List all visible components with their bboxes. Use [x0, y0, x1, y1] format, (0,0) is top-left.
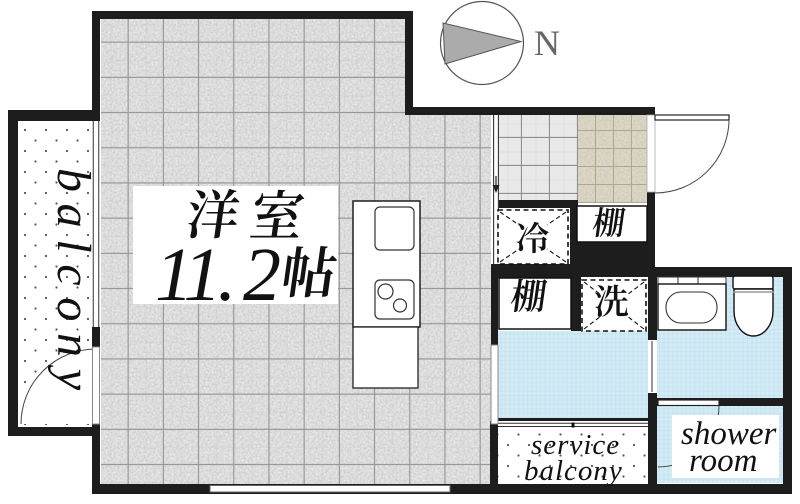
- svg-text:11.: 11.: [155, 233, 232, 317]
- svg-text:N: N: [534, 23, 560, 63]
- svg-text:room: room: [689, 443, 757, 479]
- svg-text:balcony: balcony: [524, 455, 623, 487]
- svg-text:2: 2: [243, 233, 281, 317]
